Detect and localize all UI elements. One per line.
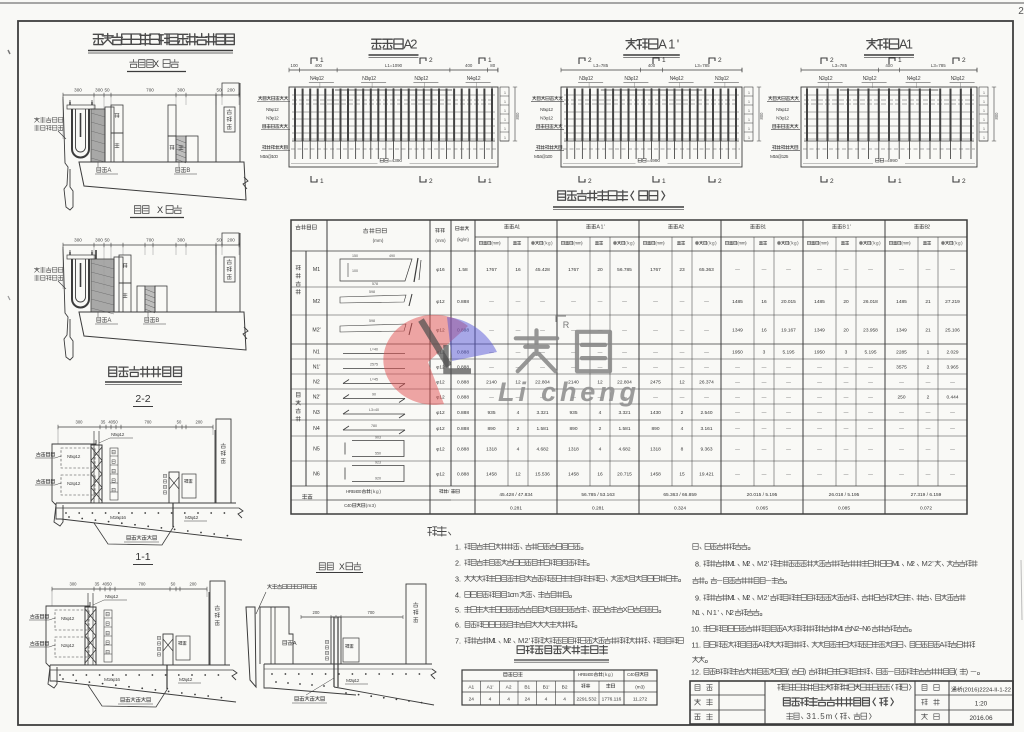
svg-text:2: 2	[718, 178, 722, 185]
svg-text:9.363: 9.363	[700, 446, 712, 452]
svg-text:0.888: 0.888	[457, 426, 469, 432]
svg-text:15.536: 15.536	[535, 471, 550, 477]
svg-text:800: 800	[515, 112, 520, 120]
svg-text:N3φ12: N3φ12	[266, 115, 279, 121]
svg-text:N3φ12: N3φ12	[540, 116, 553, 122]
svg-text:903: 903	[375, 436, 381, 440]
svg-text:N1': N1'	[313, 365, 321, 371]
svg-text:923: 923	[375, 461, 381, 465]
svg-text:1-1: 1-1	[135, 551, 150, 563]
svg-text:1430: 1430	[650, 410, 661, 416]
svg-text:L1=1090: L1=1090	[385, 63, 403, 68]
svg-text:N1: N1	[692, 608, 700, 617]
svg-text:0.888: 0.888	[457, 380, 469, 386]
svg-text:—: —	[489, 300, 494, 305]
svg-text:23: 23	[679, 267, 685, 273]
svg-text:—: —	[926, 268, 931, 273]
svg-text:—: —	[817, 268, 822, 273]
svg-text:A1': A1'	[658, 37, 679, 52]
svg-text:—: —	[786, 411, 791, 416]
svg-text:598: 598	[369, 319, 375, 323]
svg-text:N2φ12: N2φ12	[61, 643, 75, 649]
svg-text:—: —	[622, 365, 627, 370]
svg-text:—: —	[540, 328, 545, 333]
svg-text:—: —	[762, 268, 767, 273]
svg-text:3: 3	[763, 349, 766, 355]
svg-text:250: 250	[897, 394, 905, 400]
svg-text:(: (	[955, 667, 958, 676]
svg-text:HRB400: HRB400	[578, 672, 594, 678]
svg-text:M2: M2	[313, 299, 320, 305]
svg-text:935: 935	[569, 410, 577, 416]
svg-text:(kg): (kg)	[789, 241, 799, 246]
svg-text:200: 200	[196, 420, 204, 425]
svg-text:2: 2	[429, 57, 433, 64]
svg-text:M1: M1	[727, 559, 735, 568]
svg-text:—: —	[653, 328, 658, 333]
svg-text:HRB400: HRB400	[346, 489, 362, 495]
svg-text:0.888: 0.888	[457, 395, 469, 401]
svg-text:1: 1	[504, 136, 506, 140]
svg-text:—: —	[844, 365, 849, 370]
svg-text:5.195: 5.195	[864, 349, 876, 355]
svg-text:—: —	[735, 411, 740, 416]
svg-text:N4φ12: N4φ12	[907, 76, 921, 82]
svg-text:N2φ12: N2φ12	[863, 76, 877, 82]
svg-text:2.540: 2.540	[700, 410, 712, 416]
svg-text:N4φ12: N4φ12	[310, 76, 324, 82]
svg-text:25.106: 25.106	[945, 327, 960, 333]
svg-text:4050: 4050	[108, 420, 118, 425]
svg-text:(kg): (kg)	[603, 672, 614, 678]
svg-text:M1: M1	[892, 559, 900, 568]
svg-text:M2φ12: M2φ12	[179, 677, 193, 683]
svg-text:L=40: L=40	[370, 348, 378, 352]
svg-text:—: —	[844, 427, 849, 432]
svg-text:—: —	[844, 447, 849, 452]
svg-text:8.: 8.	[695, 559, 701, 568]
svg-text:2291.532: 2291.532	[576, 697, 596, 703]
svg-text:(m3): (m3)	[366, 503, 377, 509]
svg-text:—: —	[868, 411, 873, 416]
svg-text:—: —	[704, 328, 709, 333]
svg-text:2: 2	[962, 57, 966, 64]
svg-text:21: 21	[925, 327, 931, 333]
svg-text:—: —	[653, 300, 658, 305]
svg-text:A1': A1'	[487, 685, 494, 691]
svg-text:—: —	[817, 427, 822, 432]
svg-text:700: 700	[139, 582, 147, 587]
svg-text:26.374: 26.374	[699, 379, 714, 385]
svg-text:1349: 1349	[814, 327, 825, 333]
svg-text:1.: 1.	[455, 542, 461, 551]
svg-text:700: 700	[146, 88, 154, 93]
svg-text:0.324: 0.324	[674, 506, 686, 512]
svg-text:M16@125: M16@125	[770, 154, 789, 160]
svg-text:2-2: 2-2	[135, 393, 150, 405]
svg-text:—: —	[817, 365, 822, 370]
svg-text:1: 1	[488, 178, 492, 185]
svg-text:890: 890	[487, 426, 495, 432]
svg-text:800: 800	[994, 112, 999, 120]
svg-text:5.195: 5.195	[782, 349, 794, 355]
svg-text:400: 400	[885, 63, 893, 68]
svg-text:—: —	[844, 268, 849, 273]
svg-text:—: —	[844, 411, 849, 416]
svg-text:—: —	[926, 411, 931, 416]
svg-text:—: —	[680, 365, 685, 370]
svg-text:—: —	[817, 380, 822, 385]
svg-text:—: —	[844, 395, 849, 400]
svg-text:N3φ12: N3φ12	[362, 76, 376, 82]
svg-text:(mm): (mm)	[373, 238, 384, 243]
svg-text:15: 15	[679, 471, 685, 477]
svg-text:0.065: 0.065	[756, 506, 768, 512]
svg-text:150: 150	[352, 254, 358, 258]
svg-text:0.281: 0.281	[592, 506, 604, 512]
svg-text:—: —	[704, 365, 709, 370]
svg-text:300: 300	[177, 88, 185, 93]
svg-text:—: —	[704, 350, 709, 355]
svg-text:21: 21	[925, 299, 931, 305]
svg-text:M2: M2	[907, 559, 915, 568]
svg-text:1318: 1318	[568, 446, 579, 452]
svg-text:—: —	[680, 395, 685, 400]
svg-text:19.167: 19.167	[781, 327, 796, 333]
svg-text:1cm: 1cm	[507, 590, 519, 599]
svg-text:1318: 1318	[486, 446, 497, 452]
svg-text:A1': A1'	[596, 224, 605, 230]
svg-text:300: 300	[95, 238, 103, 243]
svg-text:—: —	[489, 365, 494, 370]
svg-text:—: —	[516, 328, 521, 333]
svg-text:0.888: 0.888	[457, 410, 469, 416]
svg-text:1: 1	[983, 109, 985, 113]
svg-text:1950: 1950	[814, 349, 825, 355]
svg-text:C40: C40	[344, 503, 352, 509]
svg-text:(mm): (mm)	[435, 238, 446, 243]
svg-text:2: 2	[429, 178, 433, 185]
svg-text:0.888: 0.888	[457, 472, 469, 478]
svg-text:—: —	[868, 268, 873, 273]
svg-text:400: 400	[465, 63, 473, 68]
svg-text:(kg): (kg)	[371, 489, 382, 495]
svg-text:2: 2	[517, 426, 520, 432]
svg-text:L3=785: L3=785	[695, 63, 710, 68]
svg-text:100: 100	[352, 269, 358, 273]
svg-text:—: —	[540, 300, 545, 305]
svg-text:400: 400	[315, 63, 323, 68]
svg-text:23.958: 23.958	[863, 327, 878, 333]
svg-text:1: 1	[898, 57, 902, 64]
svg-text:N2: N2	[726, 608, 734, 617]
svg-text:—: —	[926, 472, 931, 477]
svg-text:200: 200	[227, 238, 235, 243]
svg-text:56.785 / 53.163: 56.785 / 53.163	[581, 492, 615, 498]
svg-text:3.: 3.	[455, 574, 461, 583]
svg-text:B1': B1'	[842, 224, 851, 230]
svg-text:Li cheng: Li cheng	[498, 377, 637, 407]
svg-text:φ12: φ12	[436, 426, 445, 432]
svg-text:—: —	[735, 395, 740, 400]
svg-text:50: 50	[177, 420, 182, 425]
svg-text:—: —	[762, 472, 767, 477]
svg-text:B1: B1	[760, 224, 766, 230]
svg-text:890: 890	[651, 426, 659, 432]
svg-text:1: 1	[748, 127, 750, 131]
svg-text:—: —	[516, 300, 521, 305]
svg-text:400: 400	[648, 63, 656, 68]
svg-text:300: 300	[74, 88, 82, 93]
svg-text:0.444: 0.444	[946, 394, 958, 400]
svg-text:20.715: 20.715	[617, 471, 632, 477]
svg-text:N2: N2	[313, 380, 320, 386]
svg-text:2: 2	[927, 394, 930, 400]
svg-text:1: 1	[927, 349, 930, 355]
svg-text:(mm): (mm)	[655, 241, 665, 246]
svg-text:1458: 1458	[568, 471, 579, 477]
svg-text:B: B	[155, 318, 159, 324]
svg-text:—: —	[817, 472, 822, 477]
svg-text:200: 200	[190, 582, 198, 587]
svg-text:20: 20	[843, 327, 849, 333]
svg-text:1485: 1485	[814, 299, 825, 305]
svg-text:N1': N1'	[707, 608, 720, 617]
svg-text:1: 1	[748, 136, 750, 140]
svg-text:0.888: 0.888	[457, 447, 469, 453]
svg-text:2575: 2575	[370, 363, 378, 367]
svg-text:0.072: 0.072	[920, 506, 932, 512]
svg-text:4.: 4.	[455, 590, 461, 599]
svg-text:L3=785: L3=785	[593, 63, 608, 68]
svg-text:0.281: 0.281	[510, 506, 522, 512]
svg-text:—: —	[622, 350, 627, 355]
svg-text:(mm): (mm)	[491, 241, 501, 246]
svg-text:A: A	[939, 640, 945, 649]
svg-text:1: 1	[504, 100, 506, 104]
svg-text:27.319 / 6.159: 27.319 / 6.159	[911, 492, 942, 498]
svg-text:27.219: 27.219	[945, 299, 960, 305]
svg-text:M2: M2	[742, 593, 750, 602]
svg-text:—: —	[735, 472, 740, 477]
svg-text:—: —	[899, 447, 904, 452]
svg-text:—: —	[735, 447, 740, 452]
svg-text:=4390: =4390	[389, 158, 403, 164]
svg-text:1: 1	[504, 109, 506, 113]
svg-text:—: —	[598, 300, 603, 305]
svg-text:N2φ12: N2φ12	[819, 76, 833, 82]
svg-text:780: 780	[371, 424, 377, 428]
svg-text:A: A	[758, 640, 764, 649]
svg-text:50: 50	[171, 582, 176, 587]
svg-text:N5φ12: N5φ12	[61, 616, 75, 622]
svg-text:1: 1	[662, 178, 666, 185]
svg-text:N6: N6	[313, 472, 320, 478]
svg-text:4: 4	[517, 446, 520, 452]
svg-text:200: 200	[313, 610, 321, 615]
svg-text:A1: A1	[468, 685, 474, 691]
svg-text:1349: 1349	[732, 327, 743, 333]
svg-text:—: —	[680, 328, 685, 333]
svg-text:φ12: φ12	[436, 410, 445, 416]
svg-text:4: 4	[517, 410, 520, 416]
svg-text:—: —	[926, 427, 931, 432]
svg-text:5.: 5.	[455, 605, 461, 614]
svg-text:598: 598	[369, 290, 375, 294]
svg-text:N3φ12: N3φ12	[776, 116, 789, 122]
svg-text:—: —	[899, 427, 904, 432]
svg-text:11.272: 11.272	[633, 697, 648, 703]
svg-text:R: R	[563, 320, 570, 330]
svg-text:L3=785: L3=785	[832, 63, 847, 68]
svg-text:A: A	[293, 641, 297, 647]
svg-text:12: 12	[515, 471, 521, 477]
svg-text:N1: N1	[313, 350, 320, 356]
svg-text:N3φ12: N3φ12	[579, 76, 593, 82]
svg-text:1: 1	[983, 127, 985, 131]
svg-text:2285: 2285	[896, 349, 907, 355]
svg-text:M2φ12: M2φ12	[346, 678, 360, 684]
svg-text:12.: 12.	[691, 667, 701, 676]
svg-text:578: 578	[372, 282, 378, 286]
svg-text:φ12: φ12	[436, 299, 445, 305]
svg-text:1349: 1349	[896, 327, 907, 333]
svg-text:24: 24	[525, 697, 531, 703]
svg-text:M1: M1	[313, 267, 320, 273]
svg-text:7.: 7.	[455, 636, 461, 645]
svg-text:—: —	[680, 300, 685, 305]
svg-text:2: 2	[962, 178, 966, 185]
svg-text:1767: 1767	[650, 267, 661, 273]
svg-text:N3φ12: N3φ12	[624, 76, 638, 82]
svg-text:—: —	[762, 427, 767, 432]
svg-text:1.581: 1.581	[618, 426, 630, 432]
svg-text:1:20: 1:20	[975, 701, 988, 708]
svg-text:4: 4	[599, 446, 602, 452]
svg-text:—: —	[786, 427, 791, 432]
svg-text:—: —	[950, 472, 955, 477]
svg-text:N5φ12: N5φ12	[776, 107, 789, 113]
svg-text:—: —	[653, 350, 658, 355]
svg-text:B: B	[715, 667, 720, 676]
svg-text:300: 300	[70, 582, 78, 587]
svg-text:B1': B1'	[543, 685, 550, 691]
svg-text:—: —	[868, 447, 873, 452]
svg-text:20.015: 20.015	[781, 299, 796, 305]
svg-text:3575: 3575	[896, 364, 907, 370]
svg-text:1: 1	[748, 118, 750, 122]
svg-text:4: 4	[563, 697, 566, 703]
svg-text:—: —	[899, 380, 904, 385]
svg-text:1: 1	[662, 57, 666, 64]
svg-text:X: X	[339, 562, 345, 572]
svg-text:M2': M2'	[922, 559, 935, 568]
svg-text:N2φ12: N2φ12	[67, 481, 81, 487]
svg-text:9.: 9.	[695, 593, 701, 602]
svg-text:—: —	[516, 350, 521, 355]
svg-text:1318: 1318	[650, 446, 661, 452]
svg-text:50: 50	[104, 88, 110, 93]
svg-text:—: —	[680, 350, 685, 355]
svg-text:6.: 6.	[455, 620, 461, 629]
svg-text:200: 200	[227, 88, 235, 93]
svg-text:3.321: 3.321	[618, 410, 630, 416]
svg-text:12: 12	[679, 379, 685, 385]
svg-text:N2': N2'	[313, 395, 321, 401]
svg-text:A: A	[107, 168, 112, 174]
svg-text:N5: N5	[313, 447, 320, 453]
svg-text:(kg): (kg)	[625, 241, 635, 246]
svg-text:35: 35	[95, 582, 100, 587]
svg-text:(kg): (kg)	[953, 241, 963, 246]
svg-text:M2': M2'	[312, 328, 320, 334]
svg-text:2475: 2475	[650, 379, 661, 385]
svg-text:—: —	[735, 427, 740, 432]
svg-text:(kg): (kg)	[543, 241, 553, 246]
svg-text:4: 4	[681, 426, 684, 432]
svg-text:B1: B1	[524, 685, 530, 691]
svg-text:—: —	[926, 380, 931, 385]
svg-text:A2: A2	[678, 224, 684, 230]
svg-text:—: —	[817, 447, 822, 452]
svg-text:—: —	[899, 472, 904, 477]
svg-text:—: —	[786, 472, 791, 477]
svg-text:N3: N3	[313, 410, 320, 416]
svg-text:—: —	[704, 395, 709, 400]
svg-text:—: —	[950, 411, 955, 416]
svg-text:—: —	[868, 427, 873, 432]
svg-text:=4990: =4990	[647, 158, 661, 164]
svg-text:300: 300	[177, 238, 185, 243]
svg-text:4: 4	[507, 697, 510, 703]
svg-text:300: 300	[95, 88, 103, 93]
svg-text:1: 1	[748, 109, 750, 113]
svg-text:8: 8	[681, 446, 684, 452]
svg-text:2: 2	[1018, 6, 1024, 17]
svg-text:A2: A2	[404, 37, 418, 52]
svg-text:C40: C40	[627, 672, 635, 678]
svg-text:A2: A2	[506, 685, 512, 691]
svg-text:1: 1	[983, 118, 985, 122]
svg-text:(mm): (mm)	[819, 241, 829, 246]
svg-text:4050: 4050	[102, 582, 112, 587]
svg-text:N2~N6: N2~N6	[851, 624, 871, 633]
svg-text:X: X	[157, 205, 163, 215]
svg-text:N5φ12: N5φ12	[67, 454, 81, 460]
svg-text:24: 24	[469, 697, 475, 703]
svg-text:L3=785: L3=785	[931, 63, 946, 68]
svg-text:4: 4	[599, 410, 602, 416]
svg-text:800: 800	[759, 112, 764, 120]
svg-text:A: A	[782, 624, 788, 633]
svg-text:—: —	[844, 472, 849, 477]
svg-text:L=45: L=45	[370, 378, 378, 382]
svg-text:B: B	[186, 168, 190, 174]
svg-text:—: —	[571, 300, 576, 305]
svg-text:2.: 2.	[455, 558, 461, 567]
svg-text:920: 920	[375, 477, 381, 481]
svg-text:50: 50	[216, 238, 222, 243]
svg-text:1767: 1767	[486, 267, 497, 273]
svg-text:50: 50	[216, 88, 222, 93]
svg-text:1458: 1458	[486, 471, 497, 477]
svg-text:M2': M2'	[757, 593, 770, 602]
svg-text:M2: M2	[742, 559, 750, 568]
svg-text:N4: N4	[313, 426, 320, 432]
svg-text:1767: 1767	[568, 267, 579, 273]
svg-text:—: —	[489, 328, 494, 333]
svg-text:—: —	[653, 395, 658, 400]
